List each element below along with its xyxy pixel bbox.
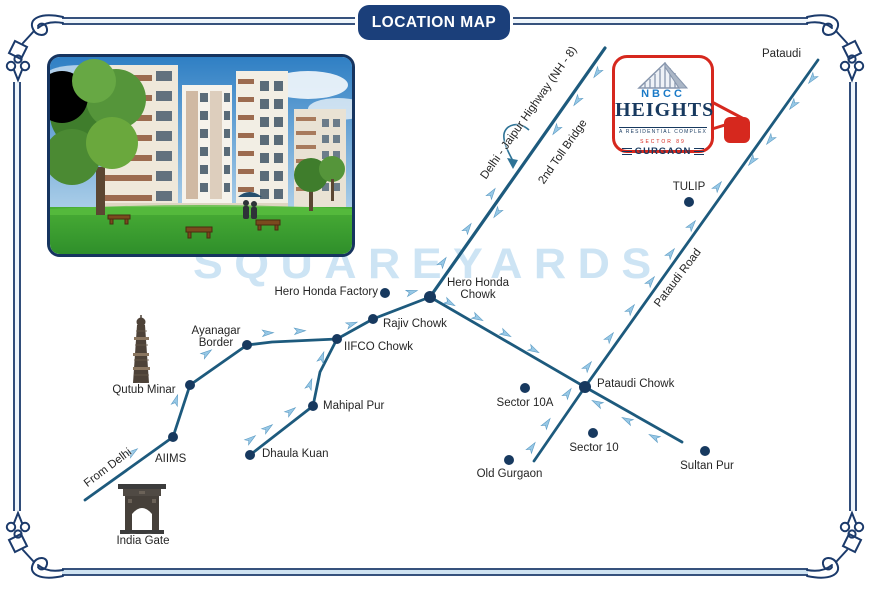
location-map-title: LOCATION MAP: [358, 5, 510, 40]
india-gate-icon: [112, 476, 172, 536]
logo-sector-text: SECTOR 89: [615, 139, 711, 145]
complex-photo: [47, 54, 355, 257]
logo-name-text: HEIGHTS: [615, 100, 711, 120]
triple-bar-icon: [694, 148, 704, 155]
qutub-minar-icon: [125, 315, 157, 385]
nbcc-heights-logo: NBCC HEIGHTS A RESIDENTIAL COMPLEX SECTO…: [612, 55, 762, 155]
logo-bubble: NBCC HEIGHTS A RESIDENTIAL COMPLEX SECTO…: [612, 55, 714, 153]
map-location-marker: [724, 117, 750, 143]
triple-bar-icon: [622, 148, 632, 155]
roof-icon: [635, 62, 691, 90]
logo-tagline-text: A RESIDENTIAL COMPLEX: [619, 127, 707, 135]
logo-city-text: GURGAON: [635, 146, 692, 157]
